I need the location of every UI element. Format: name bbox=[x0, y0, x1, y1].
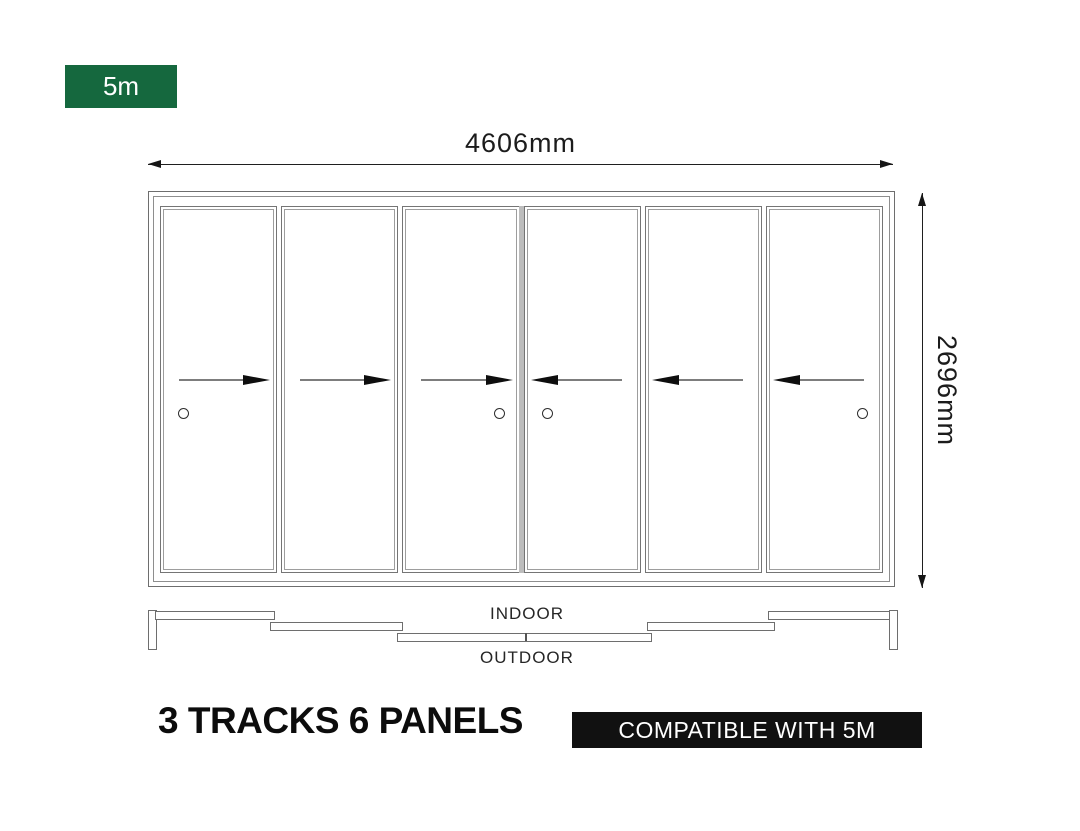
size-badge: 5m bbox=[65, 65, 177, 108]
plan-center-meeting-joint bbox=[525, 633, 527, 641]
slide-direction-arrow-icon bbox=[421, 374, 512, 386]
dimension-arrow-left-icon bbox=[148, 160, 161, 168]
door-frame-elevation bbox=[148, 191, 895, 587]
arrow-shaft bbox=[300, 379, 364, 381]
handle-icon bbox=[857, 408, 868, 419]
height-dimension-line bbox=[922, 193, 923, 588]
arrow-shaft bbox=[179, 379, 243, 381]
arrow-head bbox=[364, 375, 391, 385]
height-dimension-label: 2696mm bbox=[931, 193, 962, 588]
product-diagram: 5m 4606mm 2696mm bbox=[0, 0, 1080, 831]
plan-track2-left-panel bbox=[270, 622, 403, 631]
plan-track1-left-panel bbox=[155, 611, 275, 620]
arrow-shaft bbox=[800, 379, 864, 381]
arrow-shaft bbox=[679, 379, 743, 381]
slide-direction-arrow-icon bbox=[773, 374, 864, 386]
page-title: 3 TRACKS 6 PANELS bbox=[158, 700, 523, 742]
door-panel-5 bbox=[645, 206, 762, 573]
panel-inner-border bbox=[284, 209, 395, 570]
panel-inner-border bbox=[405, 209, 516, 570]
door-panel-6 bbox=[766, 206, 883, 573]
panel-inner-border bbox=[648, 209, 759, 570]
arrow-shaft bbox=[421, 379, 485, 381]
dimension-arrow-down-icon bbox=[918, 575, 926, 588]
width-dimension-label: 4606mm bbox=[148, 128, 893, 159]
arrow-head bbox=[243, 375, 270, 385]
panel-inner-border bbox=[769, 209, 880, 570]
center-interlock-stile bbox=[519, 206, 524, 573]
arrow-head bbox=[652, 375, 679, 385]
handle-icon bbox=[542, 408, 553, 419]
slide-direction-arrow-icon bbox=[652, 374, 743, 386]
size-badge-label: 5m bbox=[103, 71, 139, 102]
plan-track2-right-panel bbox=[647, 622, 775, 631]
compatibility-badge: COMPATIBLE WITH 5M bbox=[572, 712, 922, 748]
compatibility-badge-label: COMPATIBLE WITH 5M bbox=[618, 717, 875, 744]
dimension-arrow-up-icon bbox=[918, 193, 926, 206]
arrow-head bbox=[773, 375, 800, 385]
width-dimension-line bbox=[148, 164, 893, 165]
arrow-head bbox=[531, 375, 558, 385]
slide-direction-arrow-icon bbox=[179, 374, 270, 386]
door-panel-2 bbox=[281, 206, 398, 573]
plan-track1-right-panel bbox=[768, 611, 892, 620]
plan-track3-center-panels bbox=[397, 633, 652, 642]
handle-icon bbox=[494, 408, 505, 419]
dimension-arrow-right-icon bbox=[880, 160, 893, 168]
arrow-head bbox=[486, 375, 513, 385]
slide-direction-arrow-icon bbox=[300, 374, 391, 386]
arrow-shaft bbox=[558, 379, 622, 381]
panel-inner-border bbox=[163, 209, 274, 570]
door-panel-4 bbox=[524, 206, 641, 573]
outdoor-label: OUTDOOR bbox=[398, 648, 656, 668]
slide-direction-arrow-icon bbox=[531, 374, 622, 386]
plan-right-jamb bbox=[889, 610, 898, 650]
door-panel-1 bbox=[160, 206, 277, 573]
panel-inner-border bbox=[527, 209, 638, 570]
handle-icon bbox=[178, 408, 189, 419]
indoor-label: INDOOR bbox=[398, 604, 656, 624]
door-panel-3 bbox=[402, 206, 519, 573]
